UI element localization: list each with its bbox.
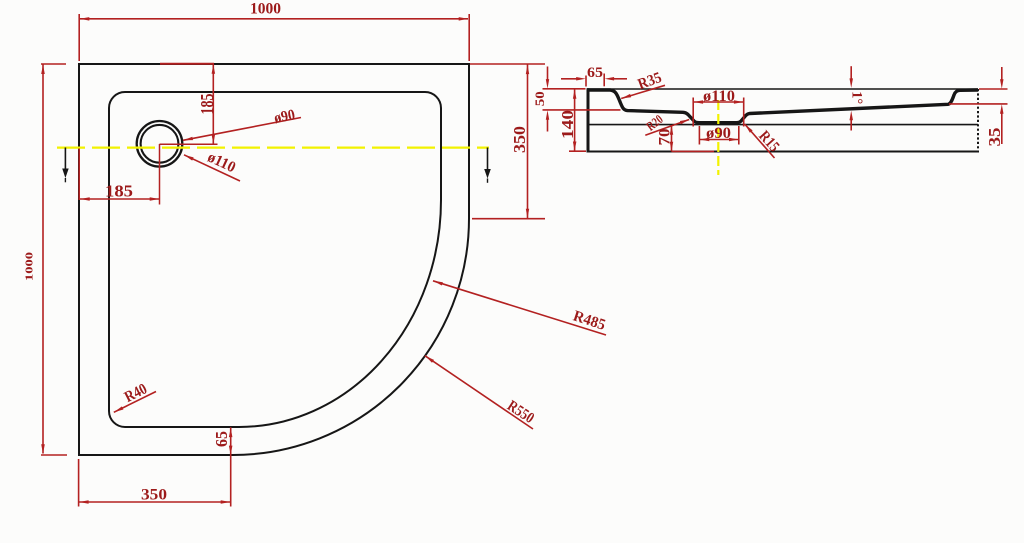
svg-text:350: 350 — [510, 126, 529, 153]
svg-text:1000: 1000 — [24, 252, 35, 281]
svg-text:ø90: ø90 — [706, 125, 731, 142]
svg-text:140: 140 — [558, 110, 577, 139]
svg-text:1000: 1000 — [250, 1, 281, 18]
svg-text:350: 350 — [141, 487, 167, 504]
svg-text:65: 65 — [212, 431, 231, 447]
svg-text:185: 185 — [197, 94, 217, 115]
svg-text:65: 65 — [587, 65, 603, 81]
svg-text:70: 70 — [657, 128, 674, 145]
svg-text:35: 35 — [985, 128, 1004, 147]
svg-text:50: 50 — [532, 91, 547, 106]
svg-text:ø110: ø110 — [703, 88, 735, 105]
svg-text:1°: 1° — [849, 91, 865, 104]
svg-text:185: 185 — [105, 181, 133, 200]
